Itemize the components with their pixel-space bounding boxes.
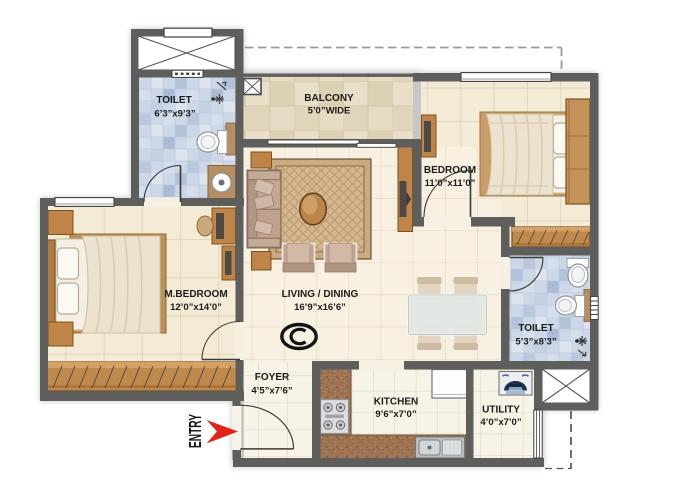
svg-text:4’0”x7’0”: 4’0”x7’0” [480, 417, 521, 428]
svg-text:TOILET: TOILET [518, 323, 553, 334]
svg-text:BALCONY: BALCONY [304, 93, 354, 104]
svg-text:5’3”x8’3”: 5’3”x8’3” [515, 337, 556, 348]
svg-text:5’0”WIDE: 5’0”WIDE [308, 106, 351, 117]
svg-text:6’3”x9’3”: 6’3”x9’3” [154, 109, 195, 120]
svg-text:BEDROOM: BEDROOM [424, 165, 476, 176]
svg-text:ENTRY: ENTRY [186, 414, 206, 448]
svg-text:UTILITY: UTILITY [482, 405, 520, 416]
svg-text:M.BEDROOM: M.BEDROOM [164, 289, 227, 300]
svg-text:11’0”x11’0”: 11’0”x11’0” [425, 178, 476, 189]
svg-text:FOYER: FOYER [255, 372, 290, 383]
svg-text:9’6”x7’0”: 9’6”x7’0” [375, 409, 416, 420]
svg-text:TOILET: TOILET [156, 95, 191, 106]
svg-text:KITCHEN: KITCHEN [374, 397, 418, 408]
svg-text:4’5”x7’6”: 4’5”x7’6” [251, 386, 292, 397]
svg-text:LIVING / DINING: LIVING / DINING [282, 289, 359, 300]
svg-text:12’0”x14’0”: 12’0”x14’0” [170, 302, 222, 313]
svg-text:16’9”x16’6”: 16’9”x16’6” [294, 302, 346, 313]
